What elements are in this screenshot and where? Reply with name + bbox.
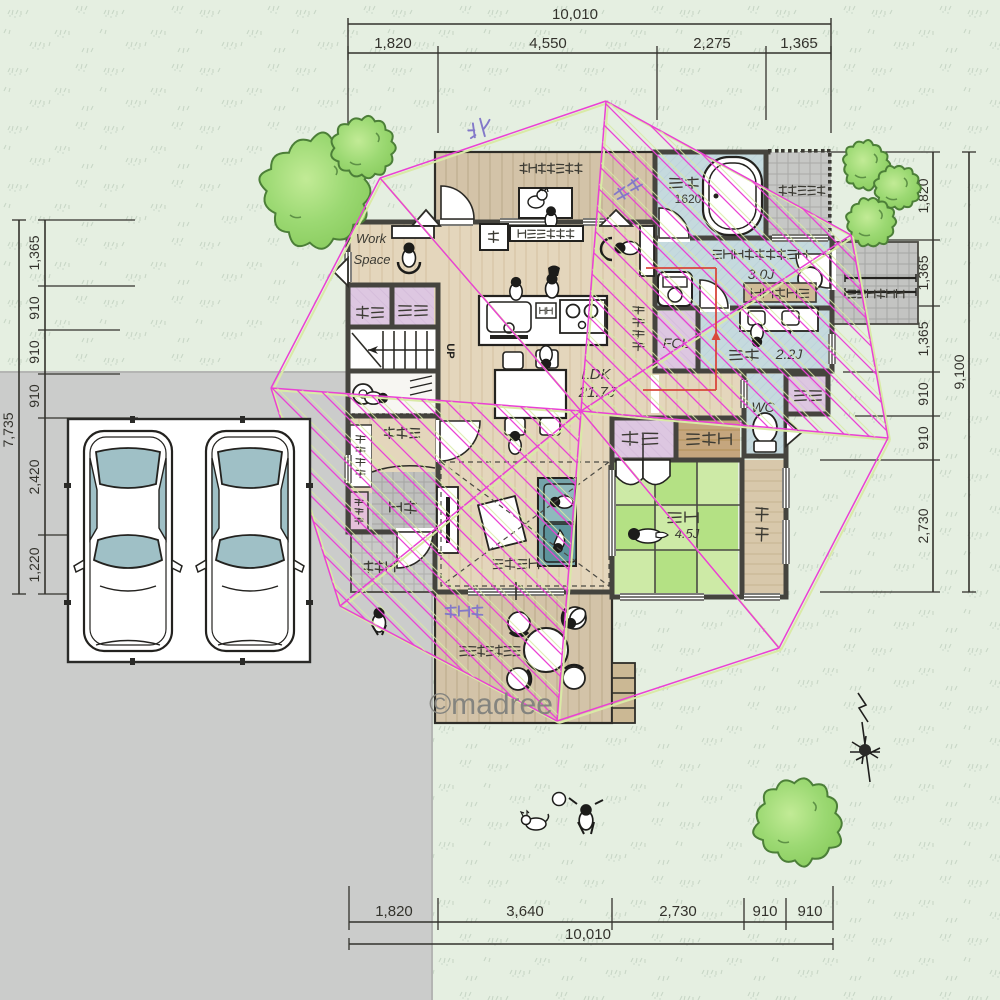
svg-text:910: 910 xyxy=(797,903,822,920)
svg-text:910: 910 xyxy=(26,384,42,408)
svg-text:1,820: 1,820 xyxy=(374,35,412,52)
svg-text:910: 910 xyxy=(26,296,42,320)
svg-text:3,640: 3,640 xyxy=(506,903,544,920)
svg-text:2,730: 2,730 xyxy=(659,903,697,920)
svg-text:10,010: 10,010 xyxy=(552,6,598,23)
svg-text:1,820: 1,820 xyxy=(375,903,413,920)
svg-text:910: 910 xyxy=(915,426,931,450)
svg-text:10,010: 10,010 xyxy=(565,926,611,943)
svg-text:910: 910 xyxy=(26,340,42,364)
svg-text:UP: UP xyxy=(444,343,456,358)
svg-text:910: 910 xyxy=(752,903,777,920)
svg-text:910: 910 xyxy=(915,382,931,406)
svg-text:©madree: ©madree xyxy=(429,688,553,721)
svg-text:1,365: 1,365 xyxy=(780,35,818,52)
svg-text:2,730: 2,730 xyxy=(915,508,931,543)
svg-text:4,550: 4,550 xyxy=(529,35,567,52)
svg-text:1,365: 1,365 xyxy=(26,235,42,270)
svg-text:9,100: 9,100 xyxy=(951,354,967,389)
svg-text:Work: Work xyxy=(356,231,388,246)
svg-text:1,220: 1,220 xyxy=(26,547,42,582)
svg-text:2,275: 2,275 xyxy=(693,35,731,52)
svg-text:7,735: 7,735 xyxy=(0,412,16,447)
svg-text:2,420: 2,420 xyxy=(26,459,42,494)
svg-text:Space: Space xyxy=(354,252,391,267)
svg-text:2.2J: 2.2J xyxy=(775,346,803,362)
svg-text:1,365: 1,365 xyxy=(915,321,931,356)
